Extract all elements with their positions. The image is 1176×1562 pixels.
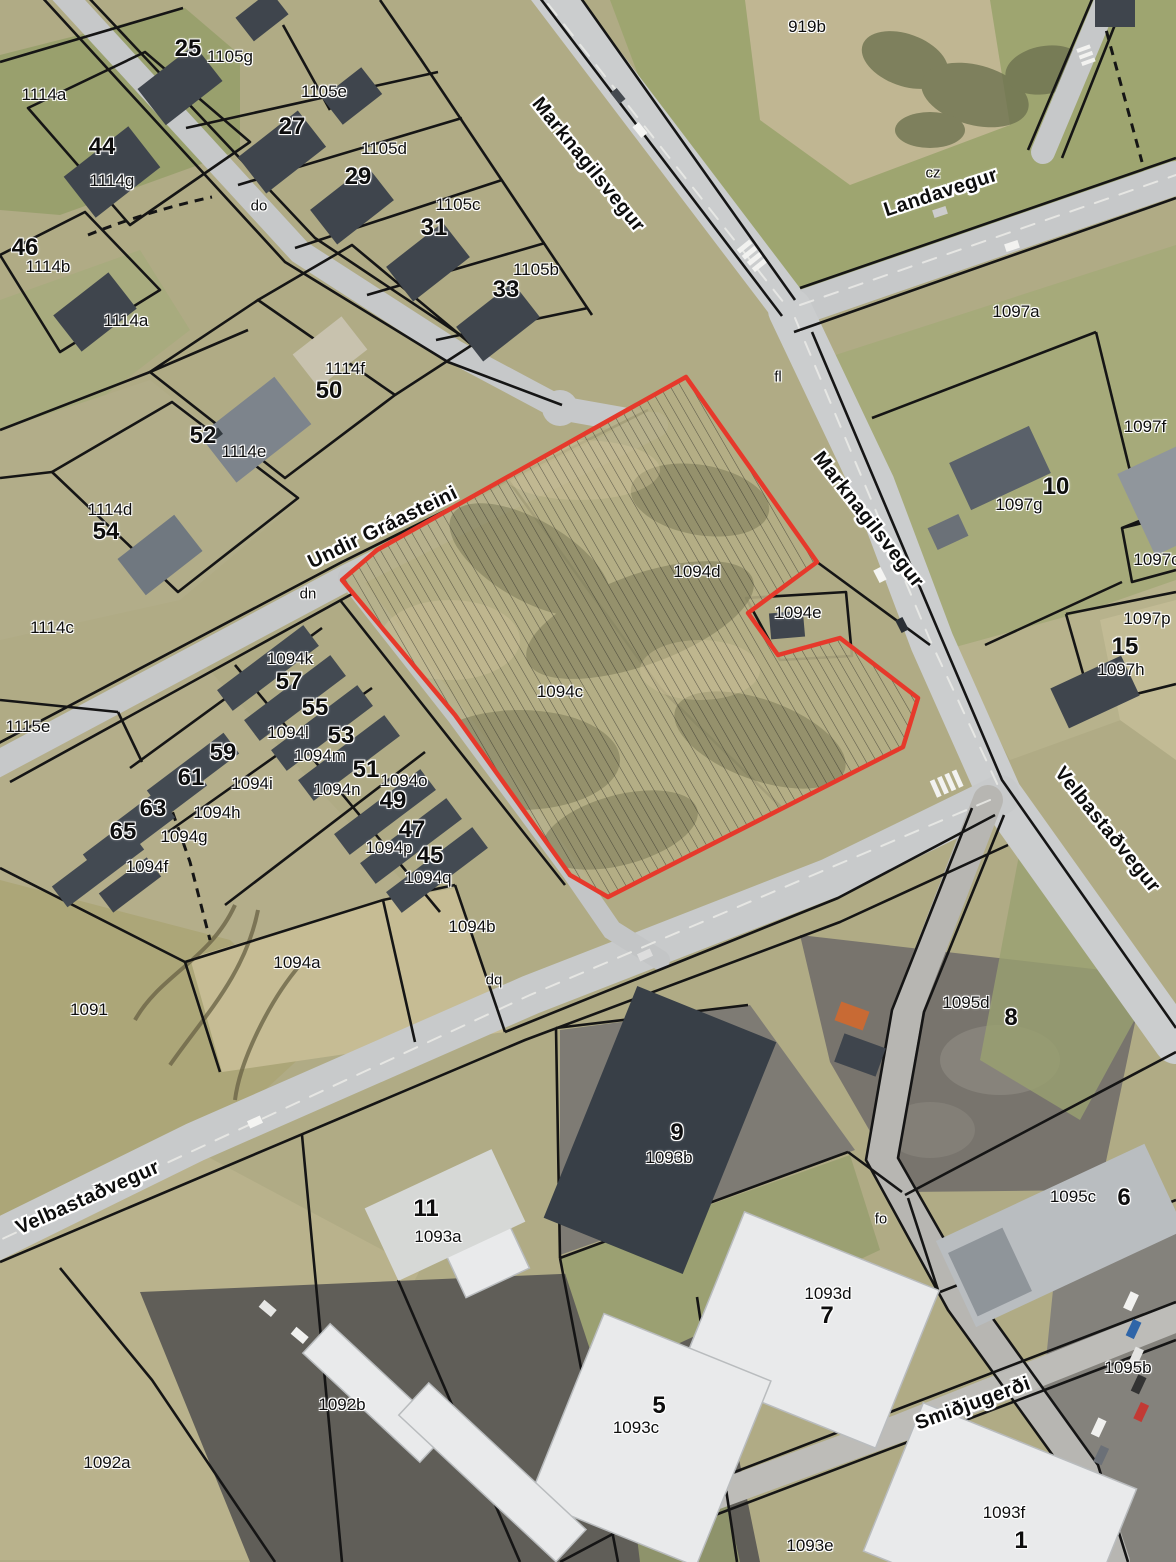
point-code-dq: dq [486,972,503,989]
parcel-label-1094k: 1094k [267,649,313,669]
parcel-label-1: 1 [1014,1527,1027,1555]
parcel-label-1114d: 1114d [88,500,133,520]
parcel-label-11: 11 [413,1195,438,1223]
parcel-label-5: 5 [652,1392,665,1420]
parcel-label-1095b: 1095b [1104,1358,1151,1378]
parcel-label-1097a: 1097a [992,302,1039,322]
point-code-fo: fo [875,1211,888,1228]
street-label-marknagilsvegur: Marknagilsvegur [527,93,650,237]
parcel-label-15: 15 [1112,633,1139,661]
parcel-label-1114e: 1114e [222,442,267,462]
parcel-label-9: 9 [670,1119,683,1147]
parcel-label-919b: 919b [788,17,826,37]
parcel-label-33: 33 [493,276,520,304]
street-label-landavegur: Landavegur [881,164,1001,222]
parcel-label-44: 44 [89,133,116,161]
parcel-label-1097f: 1097f [1124,417,1167,437]
parcel-label-1105d: 1105d [361,139,407,159]
parcel-label-31: 31 [421,214,448,242]
point-code-fl: fl [774,369,782,386]
parcel-label-1105b: 1105b [513,260,559,280]
parcel-label-27: 27 [279,113,306,141]
parcel-label-1105g: 1105g [207,47,253,67]
parcel-label-50: 50 [316,377,343,405]
parcel-label-1094o: 1094o [380,771,427,791]
parcel-label-8: 8 [1004,1004,1017,1032]
parcel-label-1114c: 1114c [30,618,74,638]
parcel-label-1114a: 1114a [22,85,67,105]
parcel-label-1097g: 1097g [995,495,1042,515]
parcel-label-1114f: 1114f [325,359,365,379]
parcel-label-1094p: 1094p [365,838,412,858]
parcel-label-52: 52 [190,422,217,450]
street-label-marknagilsvegur: Marknagilsvegur [808,447,929,592]
parcel-label-49: 49 [380,787,407,815]
parcel-label-1105c: 1105c [435,195,480,215]
parcel-label-1092a: 1092a [83,1453,130,1473]
parcel-label-1094a: 1094a [273,953,320,973]
parcel-label-1094i: 1094i [231,774,273,794]
parcel-label-1093f: 1093f [983,1503,1026,1523]
parcel-label-1093a: 1093a [414,1227,461,1247]
parcel-label-1094n: 1094n [313,780,360,800]
parcel-label-1094g: 1094g [160,827,207,847]
parcel-label-1094d: 1094d [673,562,720,582]
map-viewport: 2527293133444650525457555359615163654947… [0,0,1176,1562]
point-code-cz: cz [926,165,941,182]
parcel-label-1094q: 1094q [404,868,451,888]
parcel-label-1093b: 1093b [645,1148,692,1168]
parcel-label-57: 57 [276,668,303,696]
parcel-label-1097p: 1097p [1123,609,1170,629]
label-layer: 2527293133444650525457555359615163654947… [0,0,1176,1562]
parcel-label-1105e: 1105e [301,82,347,102]
parcel-label-45: 45 [417,842,444,870]
parcel-label-1094b: 1094b [448,917,495,937]
street-label-velbastaðvegur: Velbastaðvegur [13,1156,164,1240]
parcel-label-54: 54 [93,518,120,546]
parcel-label-1093e: 1093e [786,1536,833,1556]
parcel-label-1114b: 1114b [26,257,71,277]
parcel-label-1095c: 1095c [1050,1187,1096,1207]
parcel-label-1094e: 1094e [774,603,821,623]
parcel-label-1094f: 1094f [126,857,169,877]
parcel-label-1093d: 1093d [804,1284,851,1304]
parcel-label-1097h: 1097h [1097,660,1144,680]
parcel-label-6: 6 [1117,1184,1130,1212]
street-label-velbastaðvegur: Velbastaðvegur [1049,763,1164,898]
parcel-label-10: 10 [1043,473,1070,501]
parcel-label-61: 61 [178,764,205,792]
parcel-label-1114a: 1114a [104,311,149,331]
parcel-label-29: 29 [345,163,372,191]
parcel-label-1094l: 1094l [267,723,309,743]
parcel-label-7: 7 [820,1302,833,1330]
street-label-undir-gráasteini: Undir Gráasteini [304,482,461,574]
parcel-label-55: 55 [302,694,329,722]
parcel-label-25: 25 [175,35,202,63]
parcel-label-63: 63 [140,795,167,823]
parcel-label-1114g: 1114g [90,171,135,191]
parcel-label-1093c: 1093c [613,1418,659,1438]
parcel-label-1115e: 1115e [6,717,51,737]
parcel-label-1094c: 1094c [537,682,583,702]
parcel-label-59: 59 [210,739,237,767]
parcel-label-1091: 1091 [70,1000,108,1020]
parcel-label-1097o: 1097o [1133,550,1176,570]
parcel-label-1094m: 1094m [294,746,346,766]
street-label-smiðjugerði: Smiðjugerði [912,1372,1034,1435]
point-code-do: do [251,198,268,215]
parcel-label-65: 65 [110,818,137,846]
parcel-label-1094h: 1094h [193,803,240,823]
parcel-label-1092b: 1092b [318,1395,365,1415]
point-code-dn: dn [300,586,317,603]
parcel-label-1095d: 1095d [942,993,989,1013]
